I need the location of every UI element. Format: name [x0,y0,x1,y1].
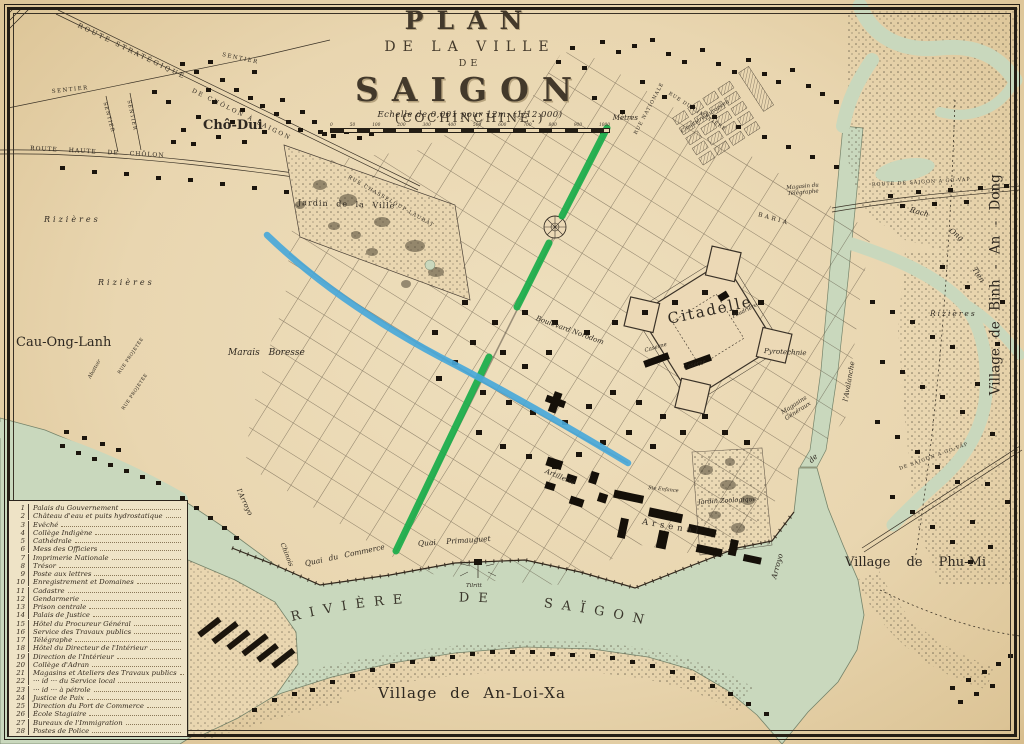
label-tilritt: Tilritt [466,584,482,590]
scale-bar-line [330,128,610,133]
corner-hatch [8,8,30,30]
legend-item: 28Postes de Police [12,727,183,735]
legend-item: 16Service des Travaux publics [12,628,183,636]
scale-bar-block: Echelle de 0,001 pour 12m. (1/12.000) Mè… [330,110,610,133]
title-saigon: SAIGON [330,70,610,109]
scale-unit: Mètres [613,114,638,122]
legend-item: 21Magasins et Ateliers des Travaux publi… [12,669,183,677]
legend-item: 5Cathédrale [12,537,183,545]
label-marais-boresse: Marais Boresse [228,349,305,358]
title-plan: PLAN [330,6,610,35]
legend-item: 12Gendarmerie [12,595,183,603]
legend-item: 4Collège Indigène [12,529,183,537]
map-title-block: PLAN DE LA VILLE DE SAIGON (COCHINCHINE.… [330,6,610,125]
legend-item: 14Palais de Justice [12,611,183,619]
scale-text: Echelle de 0,001 pour 12m. (1/12.000) [330,110,610,120]
label-village-binh-an-dong: Village de Binh - An - Dong [989,145,1003,425]
scale-bar: Mètres 050100200300400500600700800900100… [330,123,610,133]
legend-item: 26École Stagiaire [12,710,183,718]
legend-item: 8Trésor [12,562,183,570]
legend-item: 27Bureaux de l'Immigration [12,719,183,727]
legend-panel: 1Palais du Gouvernement 2Château d'eau e… [8,500,188,737]
label-rizieres-right: Rizières [930,310,977,318]
legend-item: 6Mess des Officiers [12,545,183,553]
label-village-anloixa: Village de An-Loi-Xa [378,686,566,701]
legend-item: 9Poste aux lettres [12,570,183,578]
legend-item: 17Télégraphe [12,636,183,644]
label-cau-ong-lanh: Cau-Ong-Lanh [16,336,111,349]
legend-item: 25Direction du Port de Commerce [12,702,183,710]
legend-item: 1Palais du Gouvernement [12,504,183,512]
cemetery-grid [671,66,780,165]
legend-item: 22··· id ··· du Service local [12,677,183,685]
legend-item: 20Collège d'Adran [12,661,183,669]
label-rizieres-a: Rizières [44,216,101,224]
legend-item: 23··· id ··· à pétrole [12,686,183,694]
title-de-la-ville: DE LA VILLE [330,39,610,55]
map-plate: RIVIÈRE DE SAÏGON ROUTE STRATÉGIQUE DE C… [0,0,1024,744]
label-village-phumi: Village de Phu-Mi [845,556,986,569]
legend-item: 18Hôtel du Directeur de l'Intérieur [12,644,183,652]
legend-item: 10Enregistrement et Domaines [12,578,183,586]
legend-item: 13Prison centrale [12,603,183,611]
label-cho-dui: Chô-Dui [203,119,263,132]
legend-item: 3Evêché [12,521,183,529]
legend-item: 19Direction de l'Intérieur [12,653,183,661]
legend-item: 11Cadastre [12,587,183,595]
legend-item: 24Justice de Paix [12,694,183,702]
citadelle-fort [613,235,803,425]
legend-item: 7Imprimerie Nationale [12,554,183,562]
legend-item: 2Château d'eau et puits hydrostatique [12,512,183,520]
artillerie-blocks [536,457,613,514]
label-rizieres-b: Rizières [98,279,155,287]
title-de: DE [330,58,610,69]
legend-item: 15Hôtel du Procureur Général [12,620,183,628]
